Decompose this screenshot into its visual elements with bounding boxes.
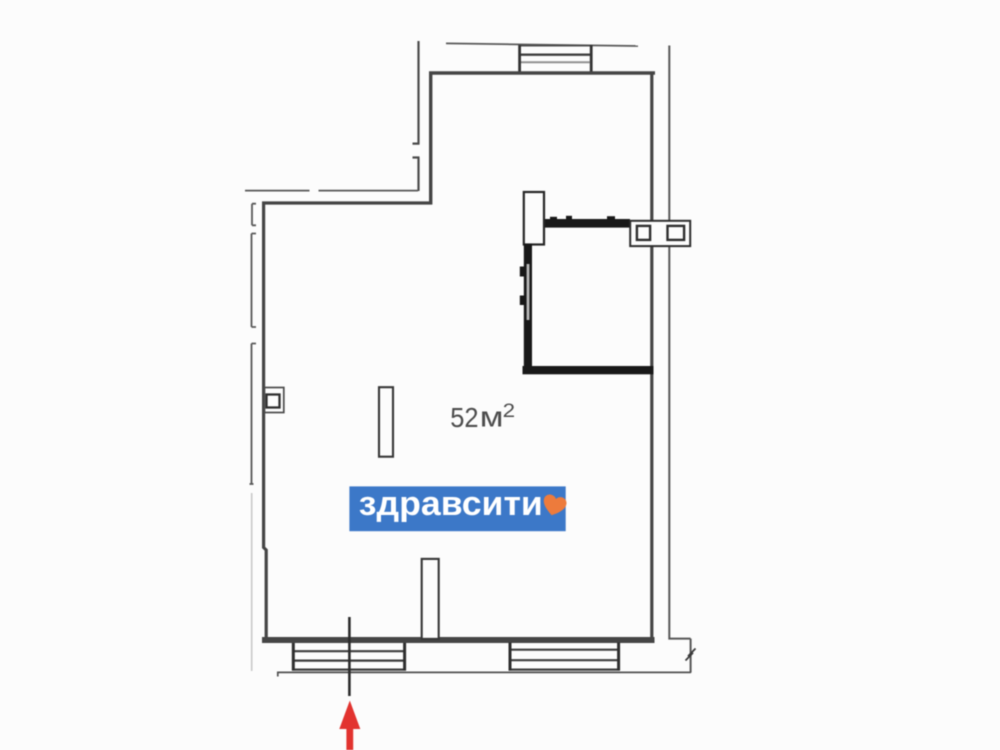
svg-text:здравсити: здравсити [359, 485, 543, 523]
svg-text:м: м [480, 400, 504, 433]
svg-text:52: 52 [450, 402, 478, 433]
svg-text:2: 2 [503, 400, 515, 422]
